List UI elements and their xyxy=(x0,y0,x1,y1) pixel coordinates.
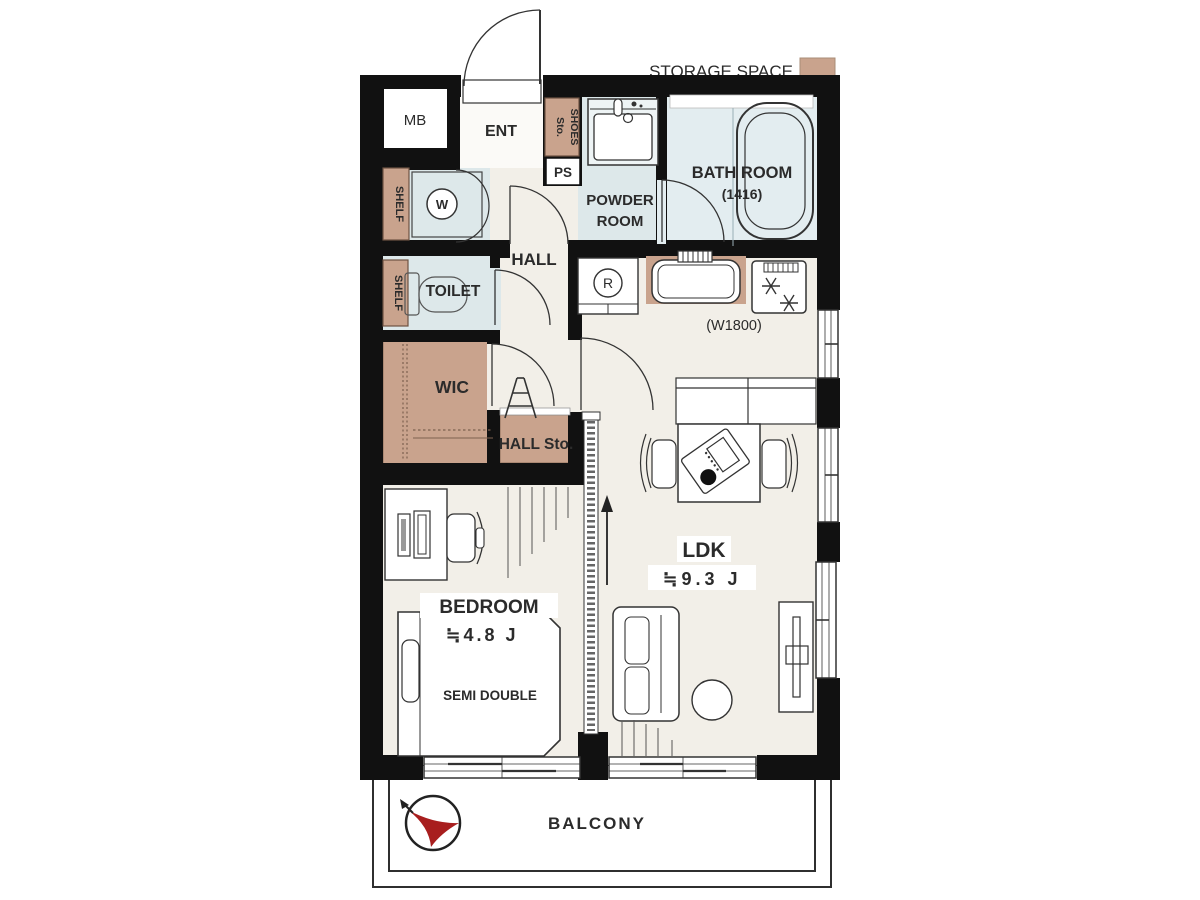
ldk-label: LDK xyxy=(682,539,725,562)
washbasin-icon xyxy=(588,99,658,165)
powder-room-label-1: POWDER xyxy=(586,192,654,209)
shelf-washer-label: SHELF xyxy=(393,186,405,222)
window-bedroom-balcony xyxy=(424,757,580,778)
kitchen-width-label: (W1800) xyxy=(706,318,762,334)
desk-icon xyxy=(385,489,447,580)
tv-board-icon xyxy=(779,602,813,712)
entrance-label: ENT xyxy=(485,123,517,140)
meter-box-label: MB xyxy=(404,112,427,129)
window-ldk-side-lower xyxy=(816,562,836,678)
hall-label: HALL xyxy=(511,250,556,269)
wic-door-opening xyxy=(487,344,500,410)
balcony-label: BALCONY xyxy=(548,814,646,833)
wic-floor xyxy=(383,338,495,466)
refrigerator-label: R xyxy=(603,275,613,291)
ldk-size-label: ≒9.3 J xyxy=(662,569,741,589)
floor-plan-svg: STORAGE SPACE BALCONY xyxy=(0,0,1200,900)
sliding-partition xyxy=(582,412,600,734)
pillow-icon xyxy=(402,640,419,702)
window-kitchen-side xyxy=(818,310,838,378)
window-ldk-balcony xyxy=(609,757,756,778)
bedroom-size-label: ≒4.8 J xyxy=(445,625,518,645)
pipe-space-label: PS xyxy=(554,165,572,180)
bed-type-label: SEMI DOUBLE xyxy=(443,688,537,703)
washer-label: W xyxy=(436,197,449,212)
window-ldk-side-upper xyxy=(818,428,838,522)
bedroom-label: BEDROOM xyxy=(439,597,538,618)
shelf-toilet-label: SHELF xyxy=(392,275,404,311)
toilet-label: TOILET xyxy=(426,283,481,300)
shoes-storage-label-2: Sto. xyxy=(554,117,566,137)
side-table-icon xyxy=(692,680,732,720)
hall-storage-label: HALL Sto. xyxy=(499,436,574,453)
wic-label: WIC xyxy=(435,377,469,397)
powder-room-label-2: ROOM xyxy=(597,213,644,230)
counter-cabinet xyxy=(676,378,816,424)
bath-edge xyxy=(670,95,813,108)
bath-room-label: BATH ROOM xyxy=(692,164,793,182)
stove-icon xyxy=(752,261,806,313)
shoes-storage-label-1: SHOES xyxy=(568,109,580,146)
sofa-icon xyxy=(613,607,679,721)
bath-size-label: (1416) xyxy=(722,186,762,202)
entry-step xyxy=(463,80,541,103)
balcony: BALCONY xyxy=(373,765,831,887)
floor-plan-page: STORAGE SPACE BALCONY xyxy=(0,0,1200,900)
